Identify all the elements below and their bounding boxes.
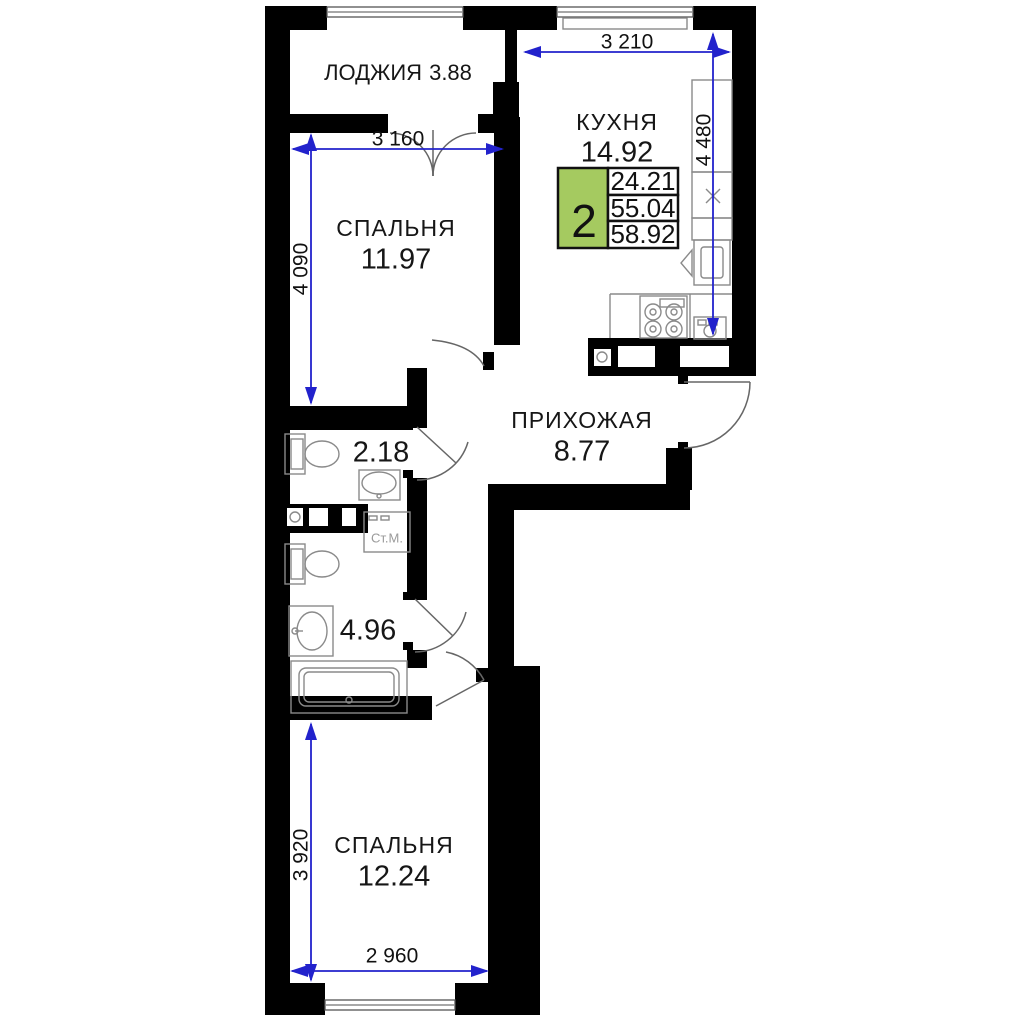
bedroom2-name: СПАЛЬНЯ: [334, 832, 453, 858]
summary-total-area: 58.92: [610, 219, 675, 249]
washing-machine-label: Ст.М.: [371, 530, 403, 545]
dimension-kitchen-height: 4 480: [693, 32, 719, 336]
wc-door: [417, 427, 468, 480]
bedroom1-door: [432, 340, 484, 366]
entrance-door: [684, 382, 750, 448]
summary-table: 2 24.21 55.04 58.92: [558, 166, 678, 249]
loggia-area: 3.88: [429, 60, 472, 85]
wc-area: 2.18: [353, 437, 409, 469]
hallway-name: ПРИХОЖАЯ: [511, 407, 653, 433]
dimension-bedroom1-height: 4 090: [290, 133, 317, 405]
bathroom-sink-icon: [289, 606, 333, 656]
wc-toilet-icon: [285, 434, 339, 474]
bedroom1-area: 11.97: [361, 244, 431, 276]
walls: [265, 6, 756, 1015]
dim-bedroom1-height-label: 4 090: [290, 243, 313, 296]
floor-plan: Ст.М. 3 210 4 480 3 160: [0, 0, 1024, 1024]
loggia-window: [327, 7, 463, 17]
bedroom1-name: СПАЛЬНЯ: [336, 215, 455, 241]
wc-sink-icon: [359, 470, 400, 500]
dimension-bedroom2-width: 2 960: [290, 945, 489, 977]
hallway-area: 8.77: [554, 436, 610, 468]
floor-plan-page: Ст.М. 3 210 4 480 3 160: [0, 0, 1024, 1024]
bedroom2-window: [325, 983, 455, 1015]
dim-bedroom2-width-label: 2 960: [366, 945, 419, 968]
bathroom-toilet-icon: [285, 544, 339, 584]
bathroom-area: 4.96: [340, 615, 396, 647]
dim-bedroom2-height-label: 3 920: [290, 829, 313, 882]
summary-room-count: 2: [571, 195, 597, 247]
kitchen-window: [557, 7, 693, 29]
bathroom-door: [415, 599, 466, 652]
dim-kitchen-width-label: 3 210: [601, 31, 654, 54]
dimension-bedroom2-height: 3 920: [290, 722, 317, 982]
kitchen-name: КУХНЯ: [576, 109, 658, 135]
refrigerator-icon: [681, 240, 730, 285]
loggia-name: ЛОДЖИЯ: [324, 60, 422, 85]
dimension-kitchen-width: 3 210: [523, 31, 731, 58]
stove-icon: [640, 296, 687, 338]
bedroom2-area: 12.24: [358, 861, 431, 893]
washing-machine-icon: Ст.М.: [364, 512, 410, 552]
dim-kitchen-height-label: 4 480: [693, 114, 716, 167]
summary-living-area: 24.21: [610, 166, 675, 196]
loggia-label: ЛОДЖИЯ3.88: [324, 60, 472, 85]
dim-bedroom1-width-label: 3 160: [372, 128, 425, 151]
kitchen-area: 14.92: [581, 137, 654, 169]
